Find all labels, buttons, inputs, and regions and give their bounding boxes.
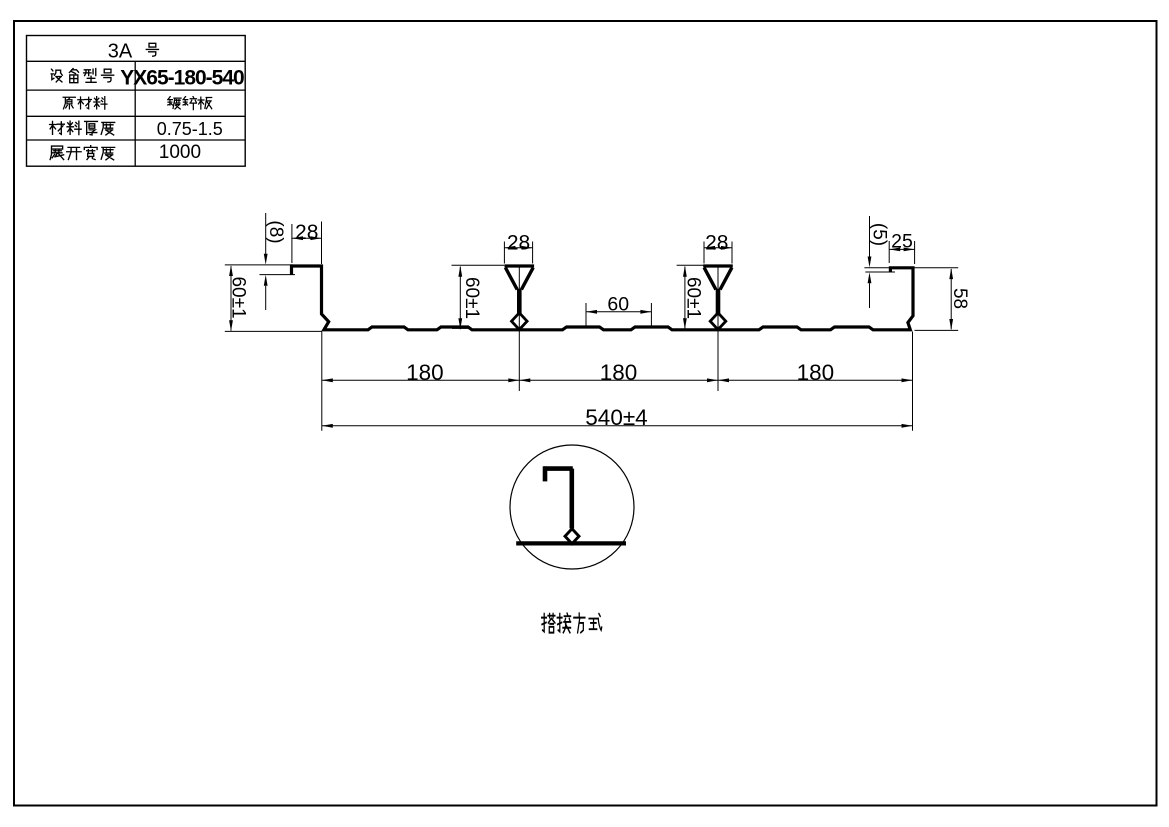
svg-text:3A: 3A: [108, 41, 133, 63]
svg-text:58: 58: [949, 288, 970, 309]
svg-text:180: 180: [600, 360, 638, 385]
svg-text:0.75-1.5: 0.75-1.5: [157, 119, 223, 139]
svg-text:60: 60: [607, 293, 629, 315]
svg-text:1000: 1000: [159, 142, 201, 163]
svg-text:540±4: 540±4: [585, 405, 647, 430]
svg-text:60±1: 60±1: [461, 277, 482, 319]
svg-text:(8): (8): [265, 220, 286, 243]
svg-text:180: 180: [406, 360, 444, 385]
svg-text:60±1: 60±1: [228, 276, 249, 318]
svg-text:25: 25: [891, 231, 913, 253]
svg-text:28: 28: [507, 232, 530, 255]
svg-text:60±1: 60±1: [683, 277, 704, 319]
svg-text:(5): (5): [869, 223, 890, 246]
svg-text:YX65-180-540: YX65-180-540: [120, 67, 244, 90]
svg-text:28: 28: [705, 232, 728, 255]
svg-text:180: 180: [797, 360, 835, 385]
svg-text:28: 28: [295, 221, 318, 244]
